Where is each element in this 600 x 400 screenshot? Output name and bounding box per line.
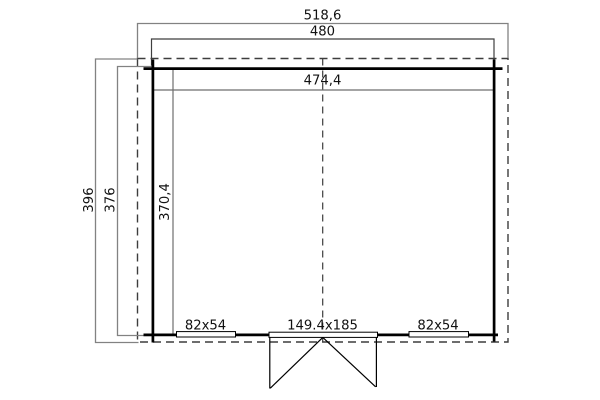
dimension-label-roof-depth: 396 bbox=[82, 187, 97, 212]
dimension-label-outer-width: 480 bbox=[310, 25, 335, 40]
door-leaves bbox=[270, 337, 377, 388]
label-door-size: 149.4x185 bbox=[287, 318, 358, 333]
label-window-right-size: 82x54 bbox=[417, 319, 458, 334]
dimension-label-roof-width: 518,6 bbox=[304, 9, 342, 24]
label-window-left-size: 82x54 bbox=[185, 319, 226, 334]
floor-plan-drawing: 518,6 480 474,4 396 376 370,4 82x54 149.… bbox=[0, 0, 600, 400]
dimension-label-outer-depth: 376 bbox=[104, 187, 119, 212]
dimension-line-outer-depth bbox=[118, 67, 153, 336]
dimension-label-inner-depth: 370,4 bbox=[158, 183, 173, 221]
dimension-label-inner-width: 474,4 bbox=[304, 74, 342, 89]
floor-plan-page: 518,6 480 474,4 396 376 370,4 82x54 149.… bbox=[0, 0, 600, 400]
